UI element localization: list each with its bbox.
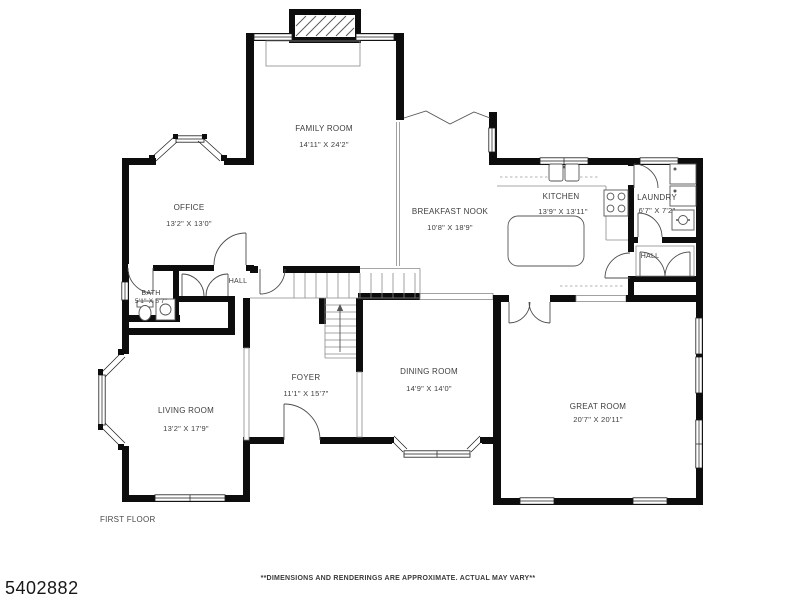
dining-bay-window — [388, 436, 486, 457]
disclaimer-text: **DIMENSIONS AND RENDERINGS ARE APPROXIM… — [261, 575, 536, 582]
room-dims-breakfast-nook: 10'8" X 18'9" — [427, 223, 473, 232]
kitchen-sink — [549, 164, 563, 181]
room-label-breakfast-nook: BREAKFAST NOOK — [412, 207, 489, 216]
room-label-foyer: FOYER — [292, 373, 321, 382]
kitchen-island — [508, 216, 584, 266]
room-dims-laundry: 6'7" X 7'2" — [639, 206, 676, 215]
living-bay-window — [98, 349, 125, 450]
washer — [670, 164, 696, 184]
room-dims-foyer: 11'1" X 15'7" — [283, 389, 328, 398]
room-label-laundry: LAUNDRY — [637, 193, 677, 202]
room-label-office: OFFICE — [174, 203, 205, 212]
kitchen-fixtures — [497, 164, 628, 286]
room-label-hall-lower: HALL — [229, 278, 248, 285]
room-dims-living-room: 13'2" X 17'9" — [163, 424, 209, 433]
floor-label: FIRST FLOOR — [100, 515, 156, 524]
stairs — [250, 111, 490, 358]
room-dims-great-room: 20'7" X 20'11" — [573, 415, 623, 424]
room-label-family-room: FAMILY ROOM — [295, 124, 353, 133]
stove — [604, 190, 628, 216]
floor-plan-svg: FAMILY ROOM 14'11" X 24'2" OFFICE 13'2" … — [0, 0, 800, 600]
office-bay-window — [149, 134, 227, 161]
room-label-kitchen: KITCHEN — [543, 192, 580, 201]
room-label-dining-room: DINING ROOM — [400, 367, 458, 376]
room-label-bath: BATH — [141, 290, 160, 297]
room-labels: FAMILY ROOM 14'11" X 24'2" OFFICE 13'2" … — [135, 124, 677, 433]
open-wall-zigzag — [404, 111, 490, 124]
room-label-great-room: GREAT ROOM — [570, 402, 627, 411]
room-dims-bath: 5'1" X 5'7" — [135, 298, 168, 305]
floor-plan-image: FAMILY ROOM 14'11" X 24'2" OFFICE 13'2" … — [0, 0, 800, 600]
hearth-outline — [266, 41, 360, 66]
room-dims-office: 13'2" X 13'0" — [166, 219, 212, 228]
room-label-living-room: LIVING ROOM — [158, 406, 214, 415]
room-dims-kitchen: 13'9" X 13'11" — [538, 207, 588, 216]
room-label-hall-upper: HALL — [641, 253, 660, 260]
room-dims-dining-room: 14'9" X 14'0" — [406, 384, 452, 393]
listing-number: 5402882 — [5, 578, 79, 598]
room-dims-family-room: 14'11" X 24'2" — [299, 140, 349, 149]
